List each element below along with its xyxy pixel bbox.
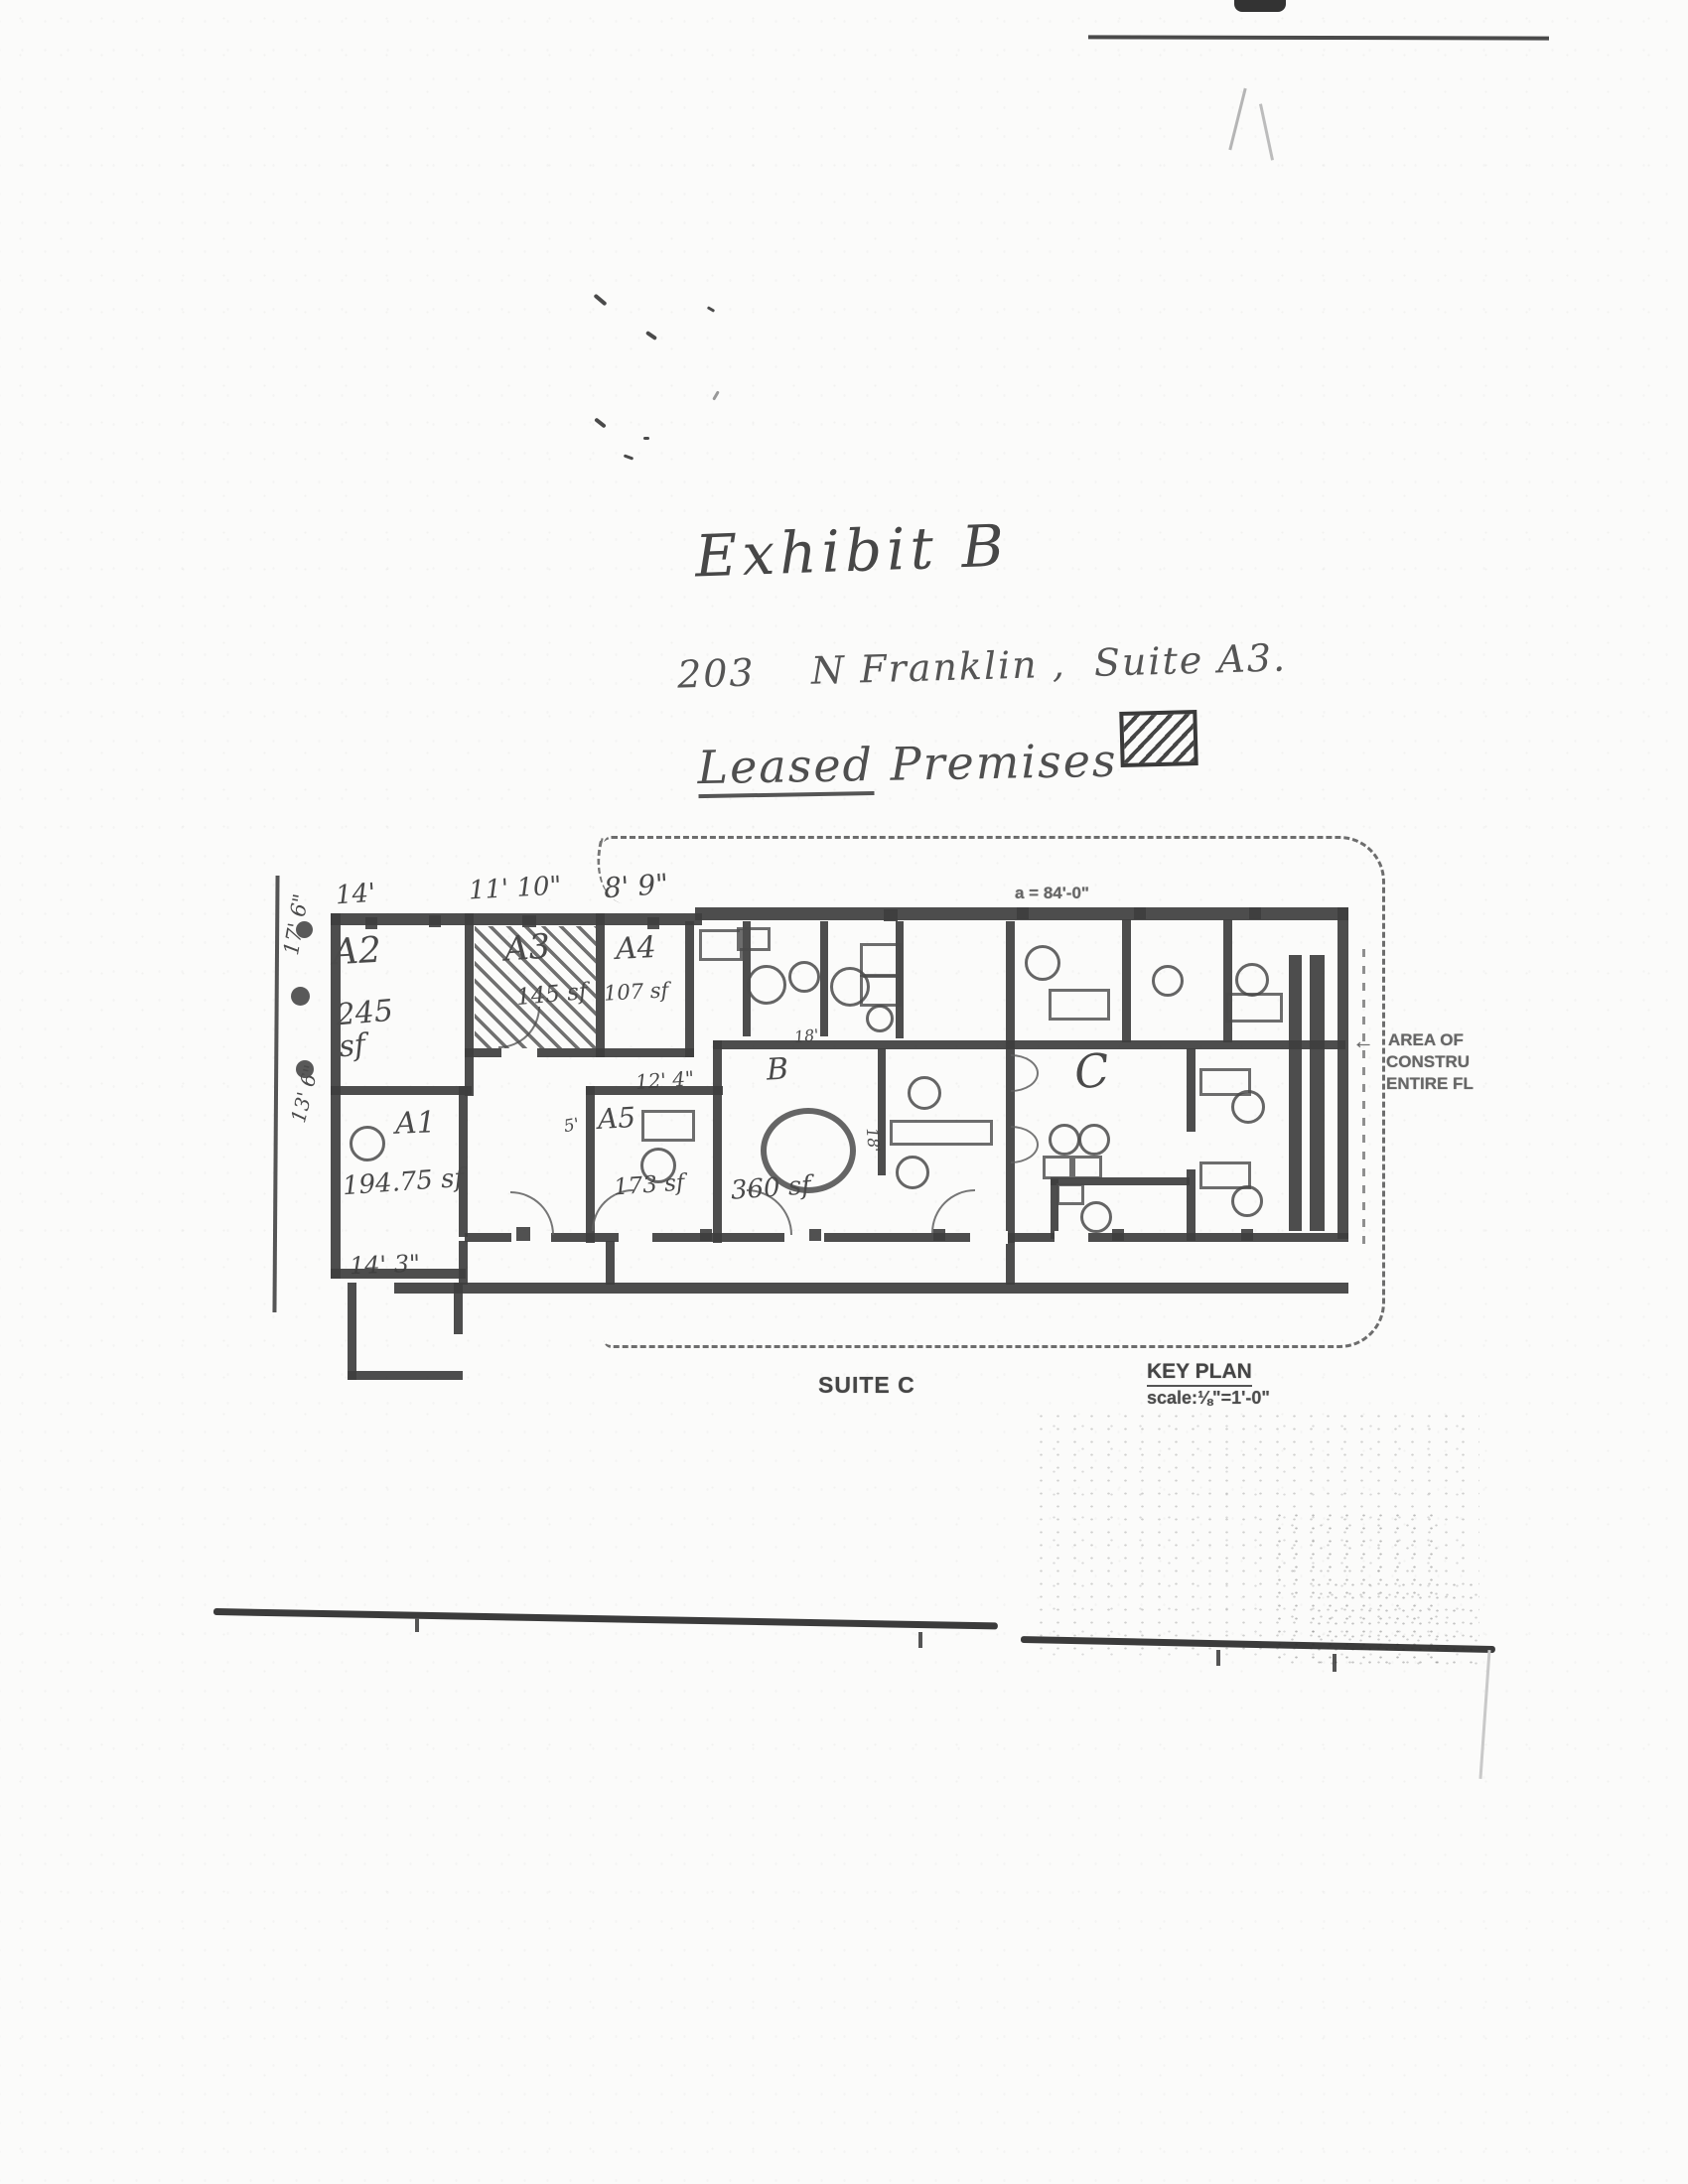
pencil-speck — [624, 454, 633, 460]
fixture-rect — [737, 927, 771, 951]
pencil-speck — [593, 294, 607, 307]
wall — [331, 1269, 466, 1279]
wall — [685, 921, 694, 1057]
stair-column — [1289, 955, 1302, 1231]
page-title: Exhibit B — [694, 516, 1010, 588]
wall — [459, 1241, 468, 1285]
margin-dot — [291, 987, 310, 1006]
desk-rect — [1225, 993, 1283, 1023]
door-opening — [619, 1231, 652, 1244]
area-note-line2: CONSTRU — [1386, 1052, 1470, 1072]
sink-circle — [866, 1005, 894, 1032]
scan-line-left — [272, 876, 279, 1312]
construction-limit-dashed-line — [1362, 949, 1365, 1247]
wall-tick — [933, 1229, 945, 1241]
pencil-check-mark — [1259, 103, 1274, 160]
door-opening — [1055, 1231, 1088, 1244]
line-drip-tick — [1333, 1654, 1336, 1672]
chair-circle — [896, 1156, 929, 1189]
wall-tick — [809, 1229, 821, 1241]
dim-a3-width: 11' 10" — [468, 874, 562, 905]
conference-table-oval — [761, 1108, 856, 1193]
wall-tick — [1249, 907, 1261, 919]
wall — [465, 913, 474, 1096]
wall — [348, 1283, 356, 1380]
chair-circle — [908, 1076, 941, 1110]
wall — [331, 1086, 472, 1095]
legend-label: Leased Premises — [631, 689, 1119, 841]
leased-premises-hatch-swatch — [1119, 710, 1197, 767]
scan-line-bottom-left — [213, 1608, 998, 1629]
room-label-a2: A2 — [332, 932, 382, 972]
pencil-speck — [712, 390, 720, 400]
room-area-a3: 145 sf — [515, 980, 588, 1010]
dim-a4-width: 8' 9" — [603, 870, 669, 903]
pencil-speck — [707, 306, 715, 313]
desk-rect — [1043, 1156, 1072, 1179]
line-drip-tick — [415, 1618, 419, 1632]
fixture-rect — [1056, 1183, 1084, 1205]
scan-line-top — [1088, 35, 1549, 40]
dim-overall-width: a = 84'-0" — [1015, 884, 1089, 903]
wall-tick — [1017, 907, 1029, 919]
wall — [713, 1040, 722, 1243]
wall-tick — [1112, 1229, 1124, 1241]
desk-rect — [641, 1110, 695, 1142]
pencil-speck — [643, 437, 649, 440]
room-label-a1: A1 — [394, 1107, 436, 1140]
chair-circle — [1152, 965, 1184, 997]
wall — [586, 1086, 723, 1095]
wall — [596, 1048, 694, 1057]
desk-rect — [1049, 989, 1110, 1021]
wall — [459, 1086, 468, 1237]
toilet-circle — [1080, 1201, 1112, 1233]
speckle-field — [1033, 1410, 1479, 1658]
room-area-a2: 245 sf — [335, 996, 397, 1063]
chair-circle — [1078, 1124, 1110, 1156]
room-area-a1: 194.75 sf — [342, 1165, 465, 1201]
line-drip-tick — [918, 1632, 922, 1648]
wall — [1006, 1241, 1015, 1285]
wall — [348, 1371, 463, 1380]
key-plan-scale: scale:⅛"=1'-0" — [1147, 1388, 1270, 1409]
room-area-a4: 107 sf — [603, 979, 668, 1004]
chair-circle — [1049, 1124, 1080, 1156]
left-arrow-icon: ← — [1352, 1028, 1374, 1054]
chair-circle — [1231, 1090, 1265, 1124]
wall — [454, 1283, 463, 1334]
fixture-rect — [860, 975, 902, 1007]
room-label-a3: A3 — [503, 929, 552, 968]
wall — [878, 1048, 886, 1175]
wall — [713, 1040, 1014, 1049]
wall-tick — [365, 917, 377, 929]
chair-circle — [1231, 1185, 1263, 1217]
pencil-check-mark — [1228, 88, 1246, 151]
wall-tick — [884, 909, 898, 921]
area-note-line1: AREA OF — [1388, 1030, 1464, 1050]
room-label-a5: A5 — [597, 1103, 636, 1134]
wall — [1122, 919, 1131, 1042]
room-label-b: B — [766, 1053, 789, 1086]
wall-tick — [516, 1227, 530, 1241]
stair-column — [1310, 955, 1325, 1231]
legend-word-leased: Leased — [697, 738, 874, 798]
wall-tick — [1134, 907, 1146, 919]
key-plan-caption: KEY PLAN — [1147, 1360, 1252, 1387]
wall-tick — [700, 1229, 712, 1241]
dim-left-upper: 17' 6" — [280, 892, 313, 957]
legend-word-premises: Premises — [874, 734, 1118, 791]
desk-rect — [1072, 1156, 1102, 1179]
wall-tick — [1241, 1229, 1253, 1241]
wall — [820, 921, 828, 1036]
room-label-c: C — [1072, 1045, 1112, 1097]
chair-circle — [1025, 945, 1060, 981]
area-note-line3: ENTIRE FL — [1386, 1074, 1474, 1094]
chair-circle — [640, 1148, 676, 1183]
chair-circle — [1235, 963, 1269, 997]
scan-line-bottom-right — [1021, 1636, 1495, 1653]
wall-tick — [647, 917, 659, 929]
wall — [394, 1283, 1348, 1294]
wall — [1187, 1048, 1196, 1132]
dim-a2-width: 14' — [335, 881, 376, 910]
faint-streak — [1478, 1650, 1490, 1779]
chair-circle — [350, 1126, 385, 1161]
pencil-speck — [594, 417, 607, 428]
line-drip-tick — [1216, 1650, 1220, 1666]
wall — [1337, 907, 1348, 1239]
suite-caption: SUITE C — [818, 1372, 915, 1399]
wall-tick — [429, 915, 441, 927]
wall — [465, 1233, 1348, 1242]
fixture-rect — [860, 943, 902, 977]
toilet-circle — [747, 965, 786, 1005]
room-label-a4: A4 — [615, 932, 656, 966]
door-opening — [970, 1231, 1008, 1244]
pencil-speck — [645, 331, 657, 341]
wall — [1223, 919, 1232, 1042]
sink-circle — [788, 961, 820, 993]
wall — [331, 913, 702, 925]
scanned-page: Exhibit B 203 N Franklin , Suite A3. Lea… — [0, 0, 1688, 2184]
scan-blob-top — [1234, 0, 1286, 12]
dim-left-lower: 13' 6" — [288, 1063, 323, 1126]
desk-rect — [890, 1120, 993, 1146]
address-line: 203 N Franklin , Suite A3. — [677, 638, 1288, 695]
wall — [606, 1241, 615, 1285]
dim-a5-left: 5' — [563, 1117, 581, 1137]
